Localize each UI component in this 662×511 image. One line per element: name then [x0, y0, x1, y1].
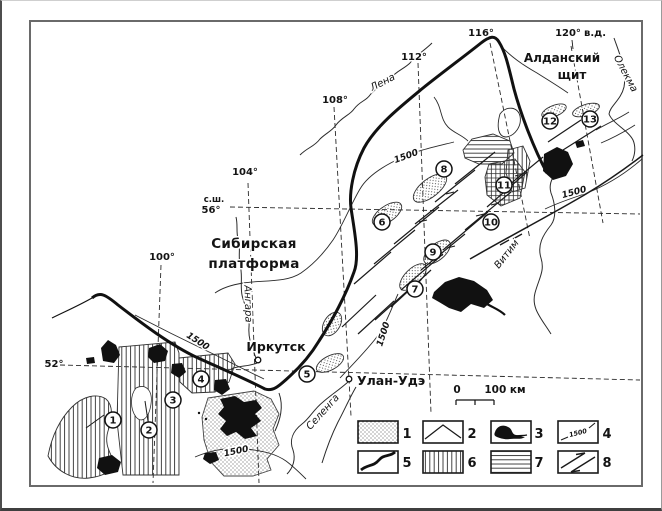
site-2: 2 [141, 422, 157, 438]
lon-100-label: 100° [149, 252, 175, 263]
site-4: 4 [193, 371, 209, 387]
svg-text:4: 4 [602, 427, 611, 442]
map-figure: { "map": { "region_labels": { "platform_… [0, 0, 662, 511]
lat-56-label: 56° [202, 205, 221, 216]
site-9: 9 [425, 244, 441, 260]
svg-text:1: 1 [110, 416, 117, 427]
legend-swatch-hhatch [491, 451, 531, 473]
legend-swatch-stipple [358, 421, 398, 443]
svg-text:5: 5 [402, 456, 411, 471]
site-5: 5 [299, 366, 315, 382]
svg-text:10: 10 [484, 218, 498, 229]
lon-112-label: 112° [401, 52, 427, 63]
lon-104-label: 104° [232, 167, 258, 178]
vd-suffix-label: в.д. [584, 28, 606, 39]
svg-text:4: 4 [198, 375, 205, 386]
svg-text:3: 3 [534, 427, 543, 442]
svg-text:3: 3 [170, 396, 177, 407]
svg-text:7: 7 [534, 456, 543, 471]
svg-text:8: 8 [602, 456, 611, 471]
svg-text:1: 1 [402, 427, 411, 442]
svg-text:2: 2 [467, 427, 476, 442]
site-1: 1 [105, 412, 121, 428]
lat-52-label: 52° [45, 359, 64, 370]
svg-text:5: 5 [304, 370, 311, 381]
svg-text:2: 2 [146, 426, 153, 437]
map-canvas: 1500 1500 1500 1500 1500 100° 104° 108° … [2, 1, 662, 511]
svg-text:6: 6 [379, 218, 386, 229]
scale-hundred: 100 км [484, 384, 525, 396]
lon-120-label: 120° [555, 28, 581, 39]
scale-zero: 0 [453, 384, 460, 396]
svg-text:12: 12 [543, 117, 557, 128]
aldan-shield-label-2: щит [558, 68, 587, 82]
siberian-platform-label-2: платформа [208, 256, 299, 272]
lon-108-label: 108° [322, 95, 348, 106]
site-7: 7 [407, 281, 423, 297]
svg-text:7: 7 [412, 285, 419, 296]
legend-swatch-vhatch [423, 451, 463, 473]
ulan-ude-label: Улан-Удэ [357, 373, 425, 388]
siberian-platform-label-1: Сибирская [211, 236, 297, 252]
site-3: 3 [165, 392, 181, 408]
svg-text:11: 11 [497, 181, 511, 192]
svg-text:8: 8 [441, 165, 448, 176]
site-6: 6 [374, 214, 390, 230]
angara-label: Ангара [241, 284, 253, 323]
ns-prefix-label: с.ш. [204, 195, 225, 205]
ulan-ude-marker [346, 376, 352, 382]
site-12: 12 [542, 113, 558, 129]
site-11: 11 [496, 177, 512, 193]
svg-text:6: 6 [467, 456, 476, 471]
svg-text:13: 13 [583, 115, 597, 126]
aldan-shield-label-1: Алданский [524, 51, 600, 65]
lon-116-label: 116° [468, 28, 494, 39]
irkutsk-marker [255, 357, 261, 363]
svg-text:9: 9 [430, 248, 437, 259]
site-13: 13 [582, 111, 598, 127]
site-10: 10 [483, 214, 499, 230]
irkutsk-label: Иркутск [246, 339, 306, 354]
site-8: 8 [436, 161, 452, 177]
